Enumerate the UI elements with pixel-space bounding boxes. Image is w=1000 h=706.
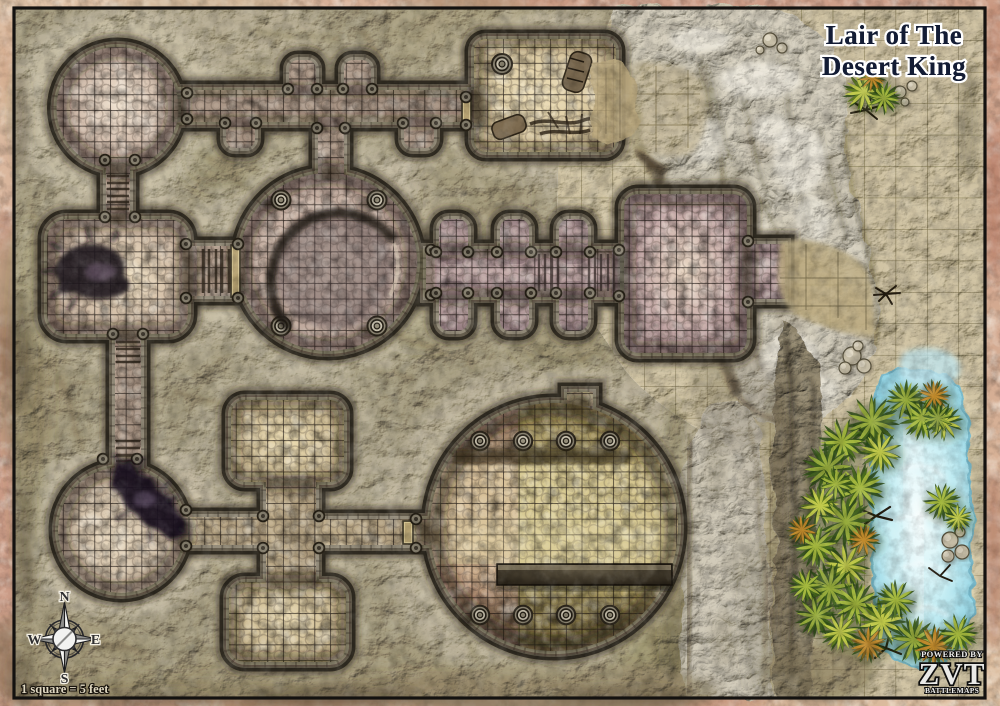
svg-text:BATTLEMAPS: BATTLEMAPS: [925, 686, 979, 695]
svg-text:Desert King: Desert King: [822, 51, 966, 81]
svg-text:E: E: [91, 633, 100, 648]
svg-text:W: W: [28, 633, 42, 648]
svg-text:1 square = 5 feet: 1 square = 5 feet: [21, 682, 109, 696]
svg-text:N: N: [59, 590, 69, 605]
svg-text:Lair of The: Lair of The: [826, 20, 963, 50]
